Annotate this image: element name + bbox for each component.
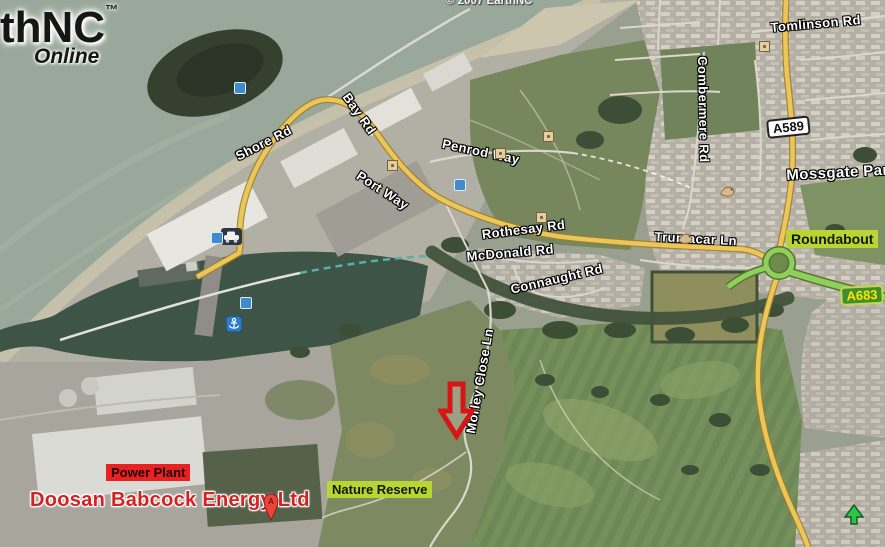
info-placemark-icon[interactable] bbox=[234, 82, 246, 94]
placemark-label-nature-reserve[interactable]: Nature Reserve bbox=[327, 481, 432, 498]
bird-icon[interactable] bbox=[678, 232, 694, 250]
map-pin-icon[interactable]: A bbox=[262, 492, 280, 527]
waypoint-icon[interactable] bbox=[495, 148, 506, 159]
logo-subtext: Online bbox=[34, 45, 118, 69]
earthnc-logo: thNC™ Online bbox=[0, 2, 118, 69]
waypoint-icon[interactable] bbox=[759, 41, 770, 52]
info-placemark-icon[interactable] bbox=[240, 297, 252, 309]
satellite-map[interactable]: thNC™ Online © 2007 EarthNC Shore Rd Bay… bbox=[0, 0, 885, 547]
road-label-combermere-rd: Combermere Rd bbox=[695, 56, 712, 163]
placemark-label-power-plant[interactable]: Power Plant bbox=[106, 464, 190, 481]
info-placemark-icon[interactable] bbox=[211, 232, 223, 244]
waypoint-icon[interactable] bbox=[536, 212, 547, 223]
anchor-icon[interactable] bbox=[226, 316, 242, 337]
bird-icon[interactable] bbox=[720, 185, 736, 203]
waypoint-icon[interactable] bbox=[543, 131, 554, 142]
trademark-symbol: ™ bbox=[105, 2, 118, 17]
pin-letter: A bbox=[268, 497, 274, 506]
car-icon[interactable] bbox=[221, 228, 242, 250]
waypoint-icon[interactable] bbox=[387, 160, 398, 171]
info-placemark-icon[interactable] bbox=[454, 179, 466, 191]
golf-course bbox=[470, 318, 802, 547]
park-arrow-icon[interactable] bbox=[844, 504, 864, 531]
location-arrow-icon[interactable] bbox=[438, 380, 476, 447]
copyright-text: © 2007 EarthNC bbox=[446, 0, 532, 7]
route-badge-a683: A683 bbox=[840, 285, 884, 306]
power-plant-site bbox=[0, 345, 345, 547]
placemark-label-roundabout[interactable]: Roundabout bbox=[786, 230, 878, 248]
